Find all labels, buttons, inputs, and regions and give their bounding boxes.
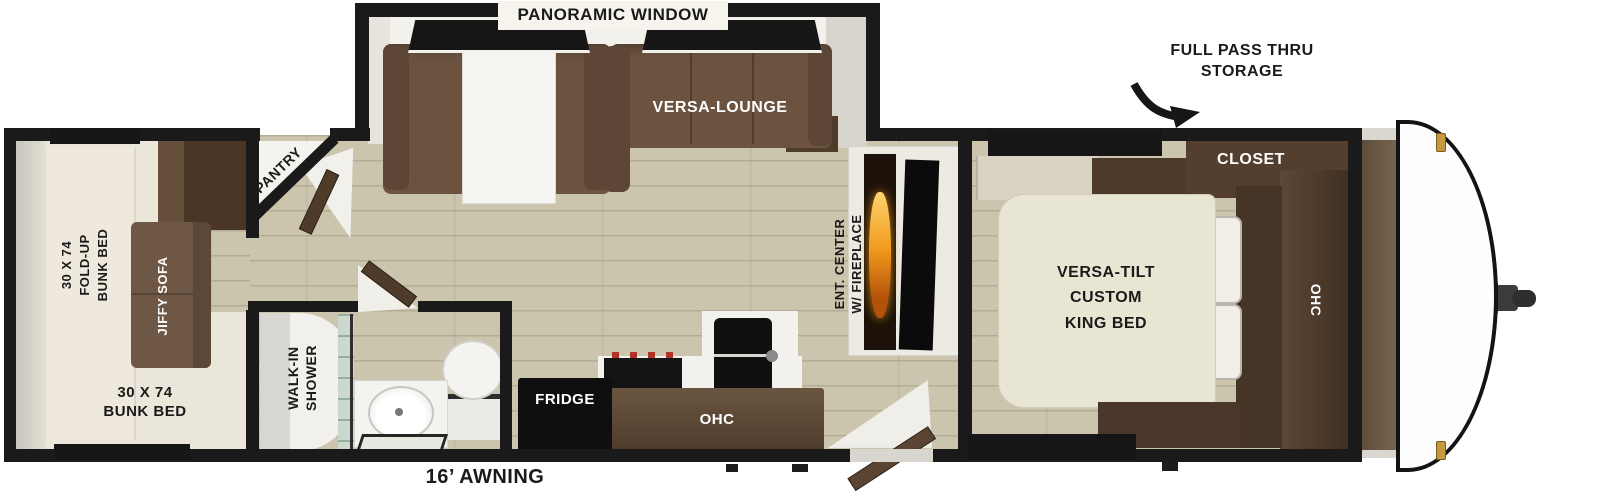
slideout-wall-right: [866, 3, 880, 138]
full-pass-thru-label: FULL PASS THRU STORAGE: [1162, 42, 1322, 82]
stove-knob-1: [612, 352, 619, 358]
bathroom-wall-right: [500, 301, 512, 461]
bunk-bed-label: 30 X 74 BUNK BED: [80, 382, 210, 422]
clearance-light-top: [1436, 133, 1446, 152]
front-cap: [1396, 120, 1498, 472]
bunk-cabinet-face: [158, 139, 184, 231]
foldup-bunk-label: 30 X 74 FOLD-UP BUNK BED: [58, 205, 112, 325]
slideout-table: [462, 38, 556, 204]
clearance-light-bottom: [1436, 441, 1446, 460]
bathroom-wall-top-right: [418, 301, 510, 312]
bedroom-window-bottom: [968, 434, 1136, 460]
awning-bracket-2: [792, 464, 808, 472]
awning-bracket-1: [726, 464, 738, 472]
rear-wall: [4, 128, 16, 462]
bunk-room-wall-shade: [14, 139, 46, 451]
tv: [899, 159, 940, 350]
toilet-bowl: [442, 340, 504, 400]
entry-threshold: [850, 449, 933, 462]
jiffy-sofa-label: JIFFY SOFA: [155, 241, 171, 351]
fridge: [518, 378, 612, 451]
panoramic-window-label: PANORAMIC WINDOW: [498, 3, 728, 27]
stove-knob-4: [666, 352, 673, 358]
bedroom-window-top: [988, 130, 1162, 156]
bunk-window-top: [50, 129, 140, 144]
bunk-doorway-floor: [210, 230, 250, 312]
bathroom-wall-top-left: [248, 301, 358, 312]
rv-floorplan: PANORAMIC WINDOW VERSA-LOUNGE PANTRY 30 …: [0, 0, 1600, 495]
hitch-coupler: [1512, 290, 1536, 307]
bunk-window-bottom: [54, 444, 190, 460]
slideout-wall-left: [355, 3, 369, 138]
versa-lounge-arm-left: [604, 46, 630, 192]
slideout-sofa-arm-left: [383, 46, 409, 190]
stove-knob-3: [648, 352, 655, 358]
awning-bracket-3: [1162, 462, 1178, 471]
kitchen-ohc-label: OHC: [612, 410, 822, 430]
bed-headboard: [1236, 186, 1282, 448]
front-wall: [1348, 128, 1362, 462]
king-bed-label: VERSA-TILT CUSTOM KING BED: [1026, 258, 1186, 338]
bunk-room-wall-lower: [246, 310, 259, 462]
fireplace-flame: [869, 192, 891, 318]
kitchen-sink-divider: [714, 354, 772, 357]
versa-lounge-arm-right: [808, 46, 832, 146]
closet-step: [1092, 158, 1192, 198]
sink-drain: [395, 408, 403, 416]
bedroom-ohc-label: OHC: [1307, 272, 1325, 328]
bedroom-divider-wall: [958, 139, 972, 454]
versa-lounge-label: VERSA-LOUNGE: [634, 96, 806, 120]
storage-arrow-icon: [1128, 80, 1202, 128]
ent-center-label: ENT. CENTER W/ FIREPLACE: [829, 204, 869, 324]
awning-label: 16’ AWNING: [400, 464, 570, 490]
kitchen-faucet: [766, 350, 778, 362]
closet-label: CLOSET: [1196, 150, 1306, 170]
walk-in-shower-label: WALK-IN SHOWER: [282, 323, 322, 433]
fridge-label: FRIDGE: [518, 390, 612, 410]
shower-glass-track: [350, 314, 353, 451]
jiffy-sofa-back: [193, 222, 211, 368]
stove-knob-2: [630, 352, 637, 358]
